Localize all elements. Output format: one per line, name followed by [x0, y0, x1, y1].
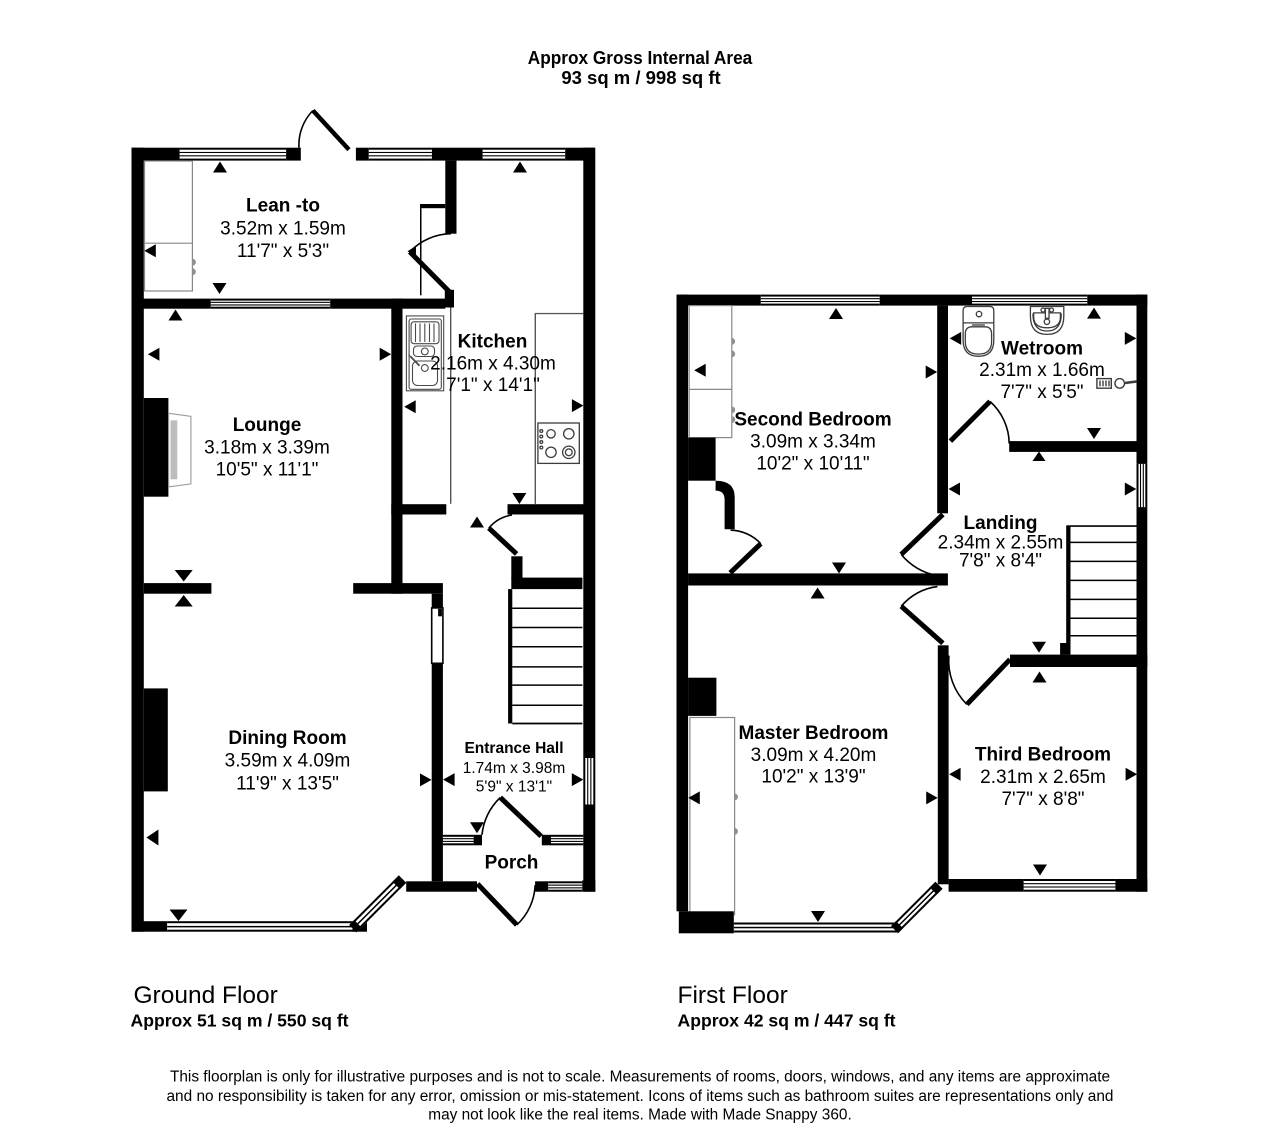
svg-text:and no responsibility is taken: and no responsibility is taken for any e… [167, 1088, 1114, 1105]
svg-text:7'7" x 5'5": 7'7" x 5'5" [1000, 382, 1083, 403]
svg-text:Landing: Landing [964, 513, 1038, 534]
svg-text:5'9" x 13'1": 5'9" x 13'1" [476, 779, 552, 796]
svg-text:3.52m x 1.59m: 3.52m x 1.59m [220, 219, 346, 240]
svg-text:First Floor: First Floor [678, 982, 788, 1009]
svg-text:2.16m x 4.30m: 2.16m x 4.30m [430, 354, 556, 375]
svg-text:11'7" x 5'3": 11'7" x 5'3" [237, 241, 329, 262]
svg-text:This floorplan is only for ill: This floorplan is only for illustrative … [170, 1069, 1110, 1086]
svg-text:7'7" x 8'8": 7'7" x 8'8" [1001, 789, 1084, 810]
svg-text:Entrance Hall: Entrance Hall [464, 740, 563, 757]
svg-text:Lean -to: Lean -to [246, 196, 320, 217]
svg-text:3.09m x 3.34m: 3.09m x 3.34m [750, 432, 876, 453]
svg-text:3.09m x 4.20m: 3.09m x 4.20m [751, 745, 877, 766]
svg-text:1.74m x 3.98m: 1.74m x 3.98m [463, 760, 566, 777]
svg-text:Porch: Porch [485, 853, 539, 874]
svg-text:Third Bedroom: Third Bedroom [975, 745, 1111, 766]
svg-text:Second Bedroom: Second Bedroom [734, 409, 891, 430]
svg-text:3.18m x 3.39m: 3.18m x 3.39m [204, 438, 330, 459]
svg-text:Master Bedroom: Master Bedroom [739, 723, 889, 744]
svg-text:Approx 42 sq m / 447 sq ft: Approx 42 sq m / 447 sq ft [678, 1011, 896, 1031]
svg-text:7'8" x 8'4": 7'8" x 8'4" [959, 551, 1042, 572]
svg-text:10'2" x 10'11": 10'2" x 10'11" [756, 454, 869, 475]
svg-text:93 sq m / 998 sq ft: 93 sq m / 998 sq ft [561, 67, 720, 88]
svg-text:Approx 51 sq m / 550 sq ft: Approx 51 sq m / 550 sq ft [131, 1011, 349, 1031]
svg-text:Ground Floor: Ground Floor [134, 982, 278, 1009]
svg-text:may not look like the real ite: may not look like the real items. Made w… [428, 1107, 851, 1124]
svg-text:7'1" x 14'1": 7'1" x 14'1" [446, 375, 540, 396]
svg-text:10'2" x 13'9": 10'2" x 13'9" [761, 767, 865, 788]
svg-text:2.31m x 1.66m: 2.31m x 1.66m [979, 360, 1105, 381]
svg-text:3.59m x 4.09m: 3.59m x 4.09m [225, 751, 351, 772]
svg-text:Approx Gross Internal Area: Approx Gross Internal Area [528, 48, 753, 68]
svg-text:Wetroom: Wetroom [1001, 339, 1083, 360]
svg-text:Dining Room: Dining Room [228, 728, 346, 749]
svg-text:11'9" x 13'5": 11'9" x 13'5" [236, 774, 339, 795]
svg-text:2.31m x 2.65m: 2.31m x 2.65m [980, 767, 1106, 788]
svg-text:Lounge: Lounge [233, 415, 302, 436]
svg-text:10'5" x 11'1": 10'5" x 11'1" [216, 460, 319, 481]
svg-text:Kitchen: Kitchen [458, 332, 528, 353]
